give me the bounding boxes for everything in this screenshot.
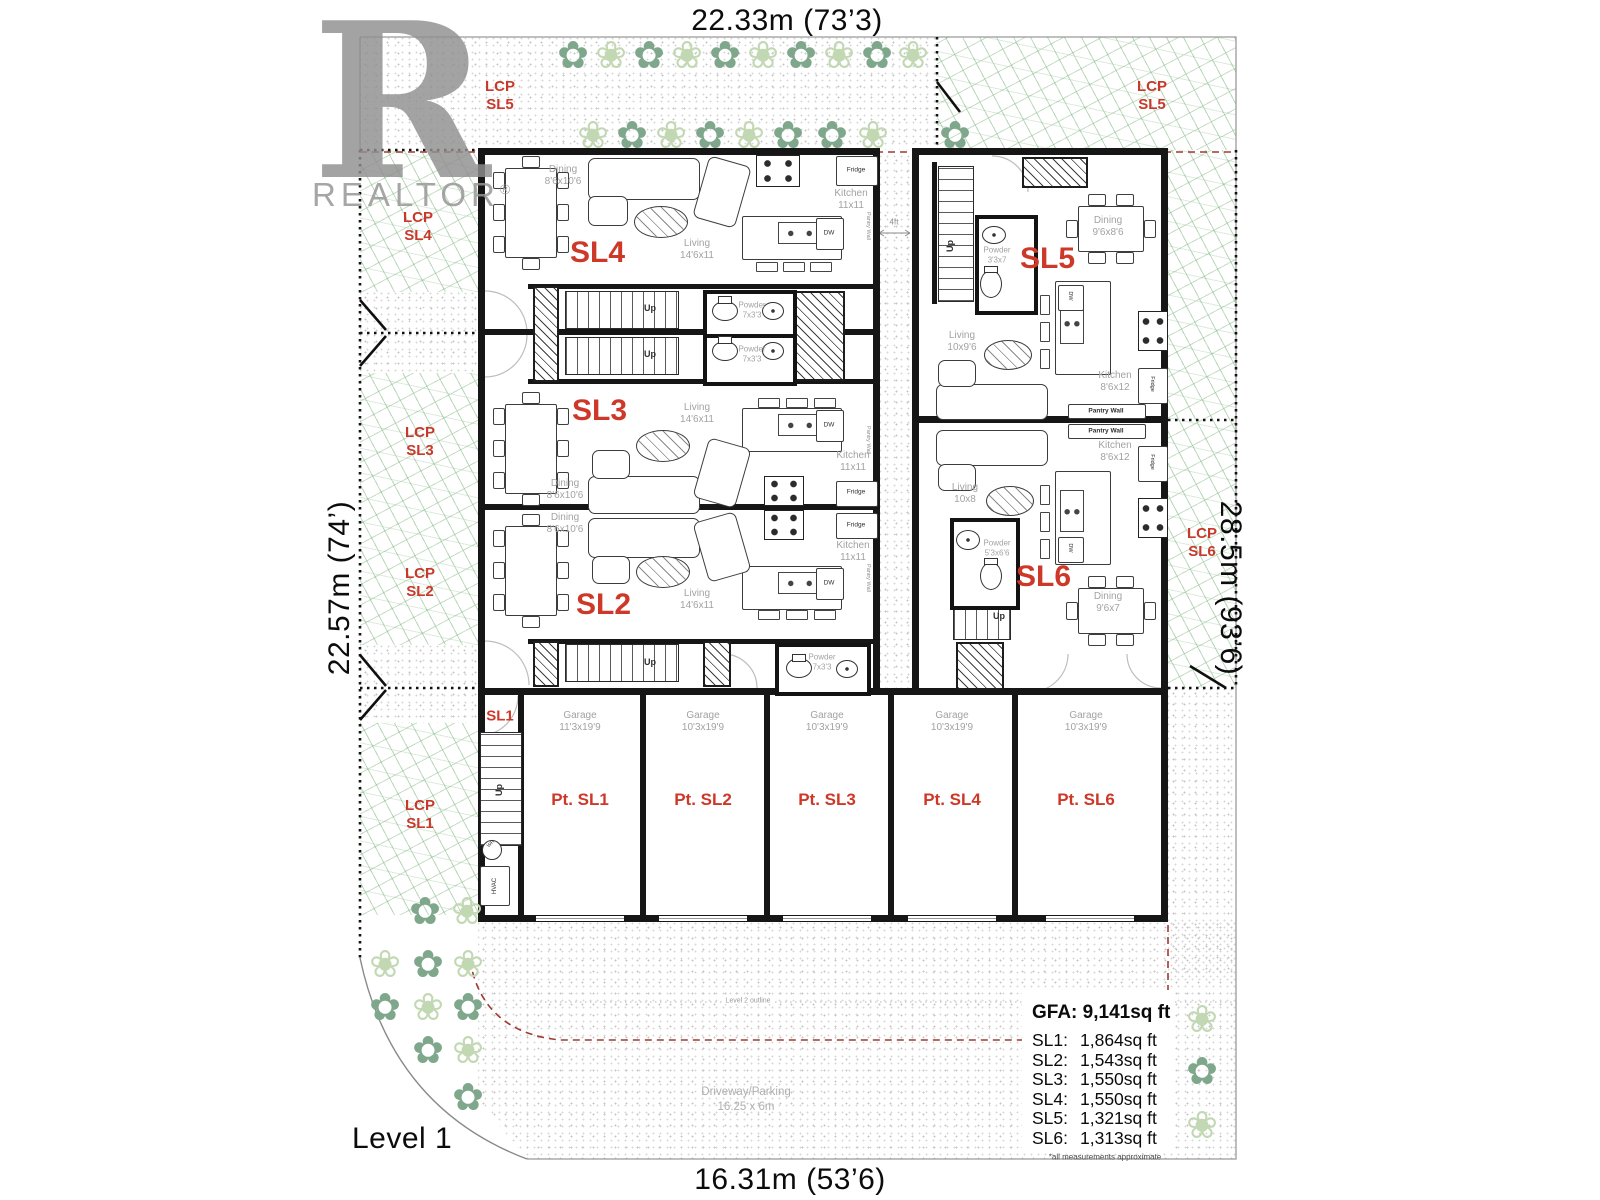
shrub-icon: ✿ [616,117,648,155]
chair-icon [522,514,540,526]
chair-icon [1116,634,1134,646]
wall [1161,688,1168,915]
room-label-sl4-kitchen: Kitchen11x11 [834,188,867,212]
chair-icon [493,440,505,457]
shrub-icon: ✿ [452,989,484,1027]
stove-icon [764,476,804,506]
lcp-label-sl4: LCPSL4 [403,209,433,245]
stool-icon [783,262,805,272]
wall [932,162,937,304]
lcp-label-top-left: LCPSL5 [485,78,515,114]
shrub-icon: ✿ [452,1079,484,1117]
stool-icon [814,398,836,408]
pantry-label-sl4: Pantry Wall [865,212,871,240]
toilet-icon [712,341,738,361]
area-row: SL2:1,543sq ft [1032,1051,1170,1071]
area-summary: GFA: 9,141sq ft SL1:1,864sq ftSL2:1,543s… [1032,1002,1170,1148]
driveway-label: Driveway/Parking16.25 x 6m [701,1085,790,1115]
lcp-label-sl1: LCPSL1 [405,797,435,833]
gap-dim-arrow [879,230,910,236]
area-row-unit: SL4: [1032,1090,1080,1110]
wall [478,148,485,695]
coffee-table-hatch [637,557,689,587]
chair-icon [557,204,569,221]
shrub-icon: ❀ [412,989,444,1027]
dw-label-sl4: DW [824,230,835,237]
room-label-garage3: Garage10'3x19'9 [806,710,848,734]
coffee-table-icon [636,556,690,588]
room-label-sl3-dining: Dining8'6x10'6 [547,478,584,502]
room-label-sl4-dining: Dining8'6x10'6 [545,164,582,188]
chair-icon [1116,576,1134,588]
coffee-table-icon [636,430,690,462]
room-label-garage5: Garage10'3x19'9 [1065,710,1107,734]
gap-dim-label: 4ft [890,218,899,227]
garage-door-icon [536,918,624,919]
room-label-sl6-living: Living10x8 [952,482,978,506]
shrub-icon: ✿ [557,37,589,75]
wall [1012,694,1018,915]
closet-hatch-icon [703,641,731,687]
shrub-icon: ✿ [633,37,665,75]
fridge-label-sl3: Fridge [847,489,865,496]
room-label-sl4-powder: Powder7x3'3 [738,301,765,320]
dim-left: 22.57m (74’) [323,501,357,675]
up-label-sl3: Up [644,349,656,359]
coffee-table-hatch [985,341,1031,369]
area-row-unit: SL1: [1032,1031,1080,1051]
area-row-value: 1,321sq ft [1080,1108,1157,1128]
stool-icon [786,398,808,408]
room-label-sl6-kitchen: Kitchen8'6x12 [1098,440,1131,464]
coffee-table-hatch [987,487,1033,515]
chair-icon [522,156,540,168]
area-rows: SL1:1,864sq ftSL2:1,543sq ftSL3:1,550sq … [1032,1031,1170,1148]
sink-icon [1060,490,1084,532]
sofa-icon [588,518,700,558]
dining-table-icon [505,526,557,616]
lcp-label-sl6: LCPSL6 [1187,525,1217,561]
toilet-tank-icon [718,296,732,304]
area-row: SL1:1,864sq ft [1032,1031,1170,1051]
lcp-label-top-right: LCPSL5 [1137,78,1167,114]
chair-icon [493,236,505,253]
closet-hatch-icon [533,286,559,382]
chair-icon [557,594,569,611]
room-label-sl6-dining: Dining9'6x7 [1094,591,1122,615]
garage-door-icon [1046,918,1134,919]
wall [873,148,880,695]
shrub-icon: ✿ [861,37,893,75]
stairs-icon [565,337,679,375]
chair-icon [1144,602,1156,620]
garage-door-icon [908,918,996,919]
dw-label-sl2: DW [824,580,835,587]
shrub-icon: ✿ [369,989,401,1027]
toilet-tank-icon [984,558,998,565]
lcp-label-sl3: LCPSL3 [405,424,435,460]
wall [528,284,880,289]
area-row-unit: SL3: [1032,1070,1080,1090]
chair-icon [522,392,540,404]
stool-icon [758,398,780,408]
toilet-tank-icon [792,654,806,662]
up-label-sl2: Up [644,657,656,667]
shrub-icon: ✿ [1186,1053,1218,1091]
chair-icon [1088,576,1106,588]
stove-icon [756,155,800,187]
unit-label-sl5: SL5 [1020,242,1075,276]
shrub-icon: ✿ [816,117,848,155]
shrub-icon: ✿ [694,117,726,155]
unit-label-sl2: SL2 [576,588,631,622]
garage-door-icon [659,918,747,919]
room-label-sl2-powder: Powder7x3'3 [808,653,835,672]
stool-icon [1040,512,1050,532]
sofa-icon [588,158,700,200]
shrub-icon: ✿ [409,893,441,931]
chair-icon [557,440,569,457]
area-row-value: 1,543sq ft [1080,1050,1157,1070]
chair-icon [1088,634,1106,646]
coffee-table-icon [984,340,1032,370]
stool-icon [1040,539,1050,559]
stool-icon [786,610,808,620]
floor-plan-canvas: ✿❀✿❀✿❀✿❀✿❀❀✿❀✿❀✿✿❀✿❀✿❀✿❀❀✿❀✿❀✿✿❀✿ R REAL… [0,0,1600,1200]
coffee-table-icon [634,206,688,238]
area-row: SL5:1,321sq ft [1032,1109,1170,1129]
chair-icon [1088,252,1106,264]
coffee-table-icon [986,486,1034,516]
fridge-label-sl4: Fridge [847,167,865,174]
room-label-garage2: Garage10'3x19'9 [682,710,724,734]
chair-icon [557,562,569,579]
shrub-icon: ✿ [709,37,741,75]
stairs-icon [565,644,679,682]
dim-right: 28.5m (93’6) [1213,501,1247,675]
area-row-unit: SL5: [1032,1109,1080,1129]
room-label-sl3-living: Living14'6x11 [680,402,714,426]
chair-icon [1066,220,1078,238]
room-label-sl5-living: Living10x9'6 [947,330,976,354]
pantry-label-sl2: Pantry Wall [865,564,871,592]
chair-icon [557,408,569,425]
stool-icon [1040,485,1050,505]
sofa-chaise-icon [938,360,976,387]
up-label-sl4: Up [644,303,656,313]
dim-bottom: 16.31m (53’6) [694,1163,886,1197]
area-row-unit: SL2: [1032,1051,1080,1071]
toilet-tank-icon [718,336,732,344]
stall-label-pt-sl4: Pt. SL4 [923,790,981,810]
dim-top: 22.33m (73’3) [691,4,883,38]
stool-icon [814,610,836,620]
stove-icon [1138,311,1168,351]
area-row: SL4:1,550sq ft [1032,1090,1170,1110]
basin-icon [982,226,1006,244]
area-row-value: 1,550sq ft [1080,1069,1157,1089]
shrub-icon: ❀ [655,117,687,155]
chair-icon [522,494,540,506]
shrub-icon: ✿ [412,1032,444,1070]
pantry-label-sl6: Pantry Wall [1088,428,1123,435]
unit-label-sl4: SL4 [570,236,625,270]
area-row: SL6:1,313sq ft [1032,1129,1170,1149]
chair-icon [1144,220,1156,238]
stool-icon [1040,349,1050,369]
registered-mark: ® [500,181,515,197]
toilet-icon [980,270,1002,298]
shrub-icon: ❀ [577,117,609,155]
area-row: SL3:1,550sq ft [1032,1070,1170,1090]
stall-label-pt-sl6: Pt. SL6 [1057,790,1115,810]
coffee-table-hatch [635,207,687,237]
sofa-chaise-icon [588,196,628,226]
shrub-icon: ✿ [412,946,444,984]
area-row-value: 1,550sq ft [1080,1089,1157,1109]
chair-icon [493,472,505,489]
shrub-icon: ❀ [1186,1001,1218,1039]
shrub-icon: ❀ [747,37,779,75]
chair-icon [1116,252,1134,264]
stool-icon [1040,322,1050,342]
shrub-icon: ✿ [785,37,817,75]
room-label-sl5-dining: Dining9'6x8'6 [1092,215,1123,239]
pantry-label-sl5: Pantry Wall [1088,408,1123,415]
chair-icon [493,562,505,579]
wall [640,694,646,915]
toilet-icon [980,562,1002,590]
shrub-icon: ❀ [671,37,703,75]
room-label-sl4-living: Living14'6x11 [680,238,714,262]
toilet-tank-icon [984,266,998,273]
room-label-garage4: Garage10'3x19'9 [931,710,973,734]
chair-icon [522,258,540,270]
gfa-total: GFA: 9,141sq ft [1032,1002,1170,1024]
coffee-table-hatch [637,431,689,461]
shrub-icon: ❀ [369,946,401,984]
shrub-icon: ❀ [452,1032,484,1070]
wall [764,694,770,915]
unit-label-sl6: SL6 [1016,560,1071,594]
room-label-sl2-kitchen: Kitchen11x11 [836,540,869,564]
fridge-label-sl5: Fridge [1149,376,1155,392]
up-label-sl6: Up [993,611,1005,621]
room-label-sl5-kitchen: Kitchen8'6x12 [1098,370,1131,394]
stove-icon [1138,498,1168,538]
level-label: Level 1 [352,1122,452,1156]
stairs-icon [565,291,679,329]
shrub-icon: ❀ [857,117,889,155]
room-label-sl6-powder: Powder5'3x6'6 [983,539,1010,558]
chair-icon [557,236,569,253]
room-label-sl5-powder: Powder3'3x7 [983,246,1010,265]
toilet-icon [712,301,738,321]
stool-icon [1040,295,1050,315]
stool-icon [810,262,832,272]
realtor-brand-text: REALTOR [312,176,500,213]
chair-icon [493,530,505,547]
room-label-garage1: Garage11'3x19'9 [559,710,600,734]
area-row-value: 1,313sq ft [1080,1128,1157,1148]
chair-icon [1088,194,1106,206]
chair-icon [1066,602,1078,620]
unit-label-sl1: SL1 [486,708,514,725]
shrub-icon: ❀ [451,893,483,931]
stool-icon [758,610,780,620]
lcp-label-sl2: LCPSL2 [405,565,435,601]
pantry-label-sl3: Pantry Wall [865,426,871,454]
shrub-icon: ❀ [595,37,627,75]
room-label-sl2-dining: Dining8'6x10'6 [547,512,584,536]
shrub-icon: ❀ [1186,1107,1218,1145]
hvac-label: HVAC [492,878,498,894]
sofa-chaise-icon [592,556,630,584]
garage-door-icon [783,918,871,919]
shrub-icon: ❀ [897,37,929,75]
sofa-icon [936,384,1048,420]
shrub-icon: ❀ [823,37,855,75]
dw-label-sl5: DW [1067,291,1073,300]
closet-hatch-icon [1022,157,1088,188]
sofa-icon [936,430,1048,466]
stairs-icon [938,166,974,302]
sofa-chaise-icon [592,450,630,479]
closet-hatch-icon [956,642,1004,690]
stool-icon [756,262,778,272]
shrub-icon: ❀ [733,117,765,155]
shrub-icon: ✿ [772,117,804,155]
stall-label-pt-sl1: Pt. SL1 [551,790,609,810]
dw-label-sl3: DW [824,422,835,429]
room-label-sl3-powder: Powder7x3'3 [738,345,765,364]
area-footnote: *all measurements approximate [1049,1153,1162,1162]
fridge-label-sl6: Fridge [1149,454,1155,470]
dw-label-sl6: DW [1067,543,1073,552]
stall-label-pt-sl3: Pt. SL3 [798,790,856,810]
wall [888,694,894,915]
area-row-unit: SL6: [1032,1129,1080,1149]
basin-icon [956,530,980,550]
closet-hatch-icon [533,641,559,687]
chair-icon [1116,194,1134,206]
sofa-icon [588,476,700,514]
up-label-sl5: Up [945,240,955,252]
up-label-sl1: Up [494,784,504,796]
shrub-icon: ✿ [939,117,971,155]
fridge-label-sl2: Fridge [847,522,865,529]
stove-icon [764,510,804,540]
unit-label-sl3: SL3 [572,394,627,428]
area-row-value: 1,864sq ft [1080,1030,1157,1050]
shrub-icon: ❀ [452,946,484,984]
chair-icon [493,408,505,425]
basin-icon [836,660,858,678]
closet-hatch-icon [793,291,845,381]
stall-label-pt-sl2: Pt. SL2 [674,790,732,810]
room-label-sl2-living: Living14'6x11 [680,588,714,612]
chair-icon [522,616,540,628]
chair-icon [493,594,505,611]
level2-outline-label: Level 2 outline [722,998,773,1005]
